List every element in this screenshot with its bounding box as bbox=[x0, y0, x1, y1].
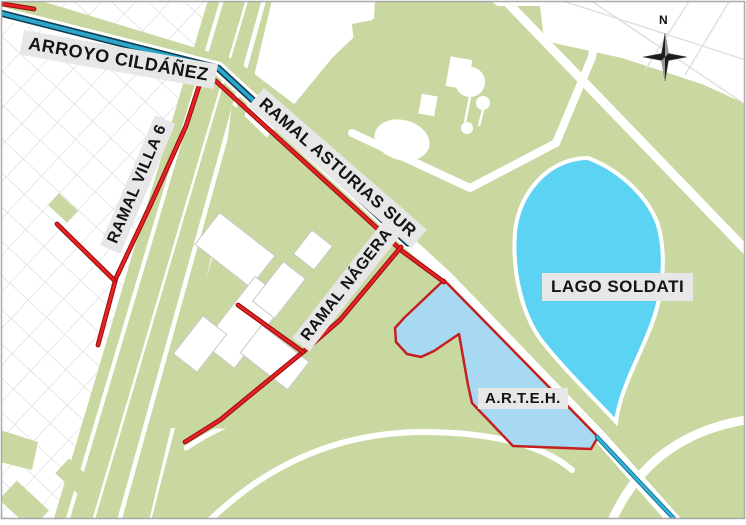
map-figure: ARROYO CILDÁÑEZ RAMAL ASTURIAS SUR RAMAL… bbox=[0, 0, 746, 525]
label-lago-soldati: LAGO SOLDATI bbox=[542, 273, 693, 301]
compass-north-label: N bbox=[659, 13, 668, 27]
label-arteh: A.R.T.E.H. bbox=[478, 388, 568, 409]
